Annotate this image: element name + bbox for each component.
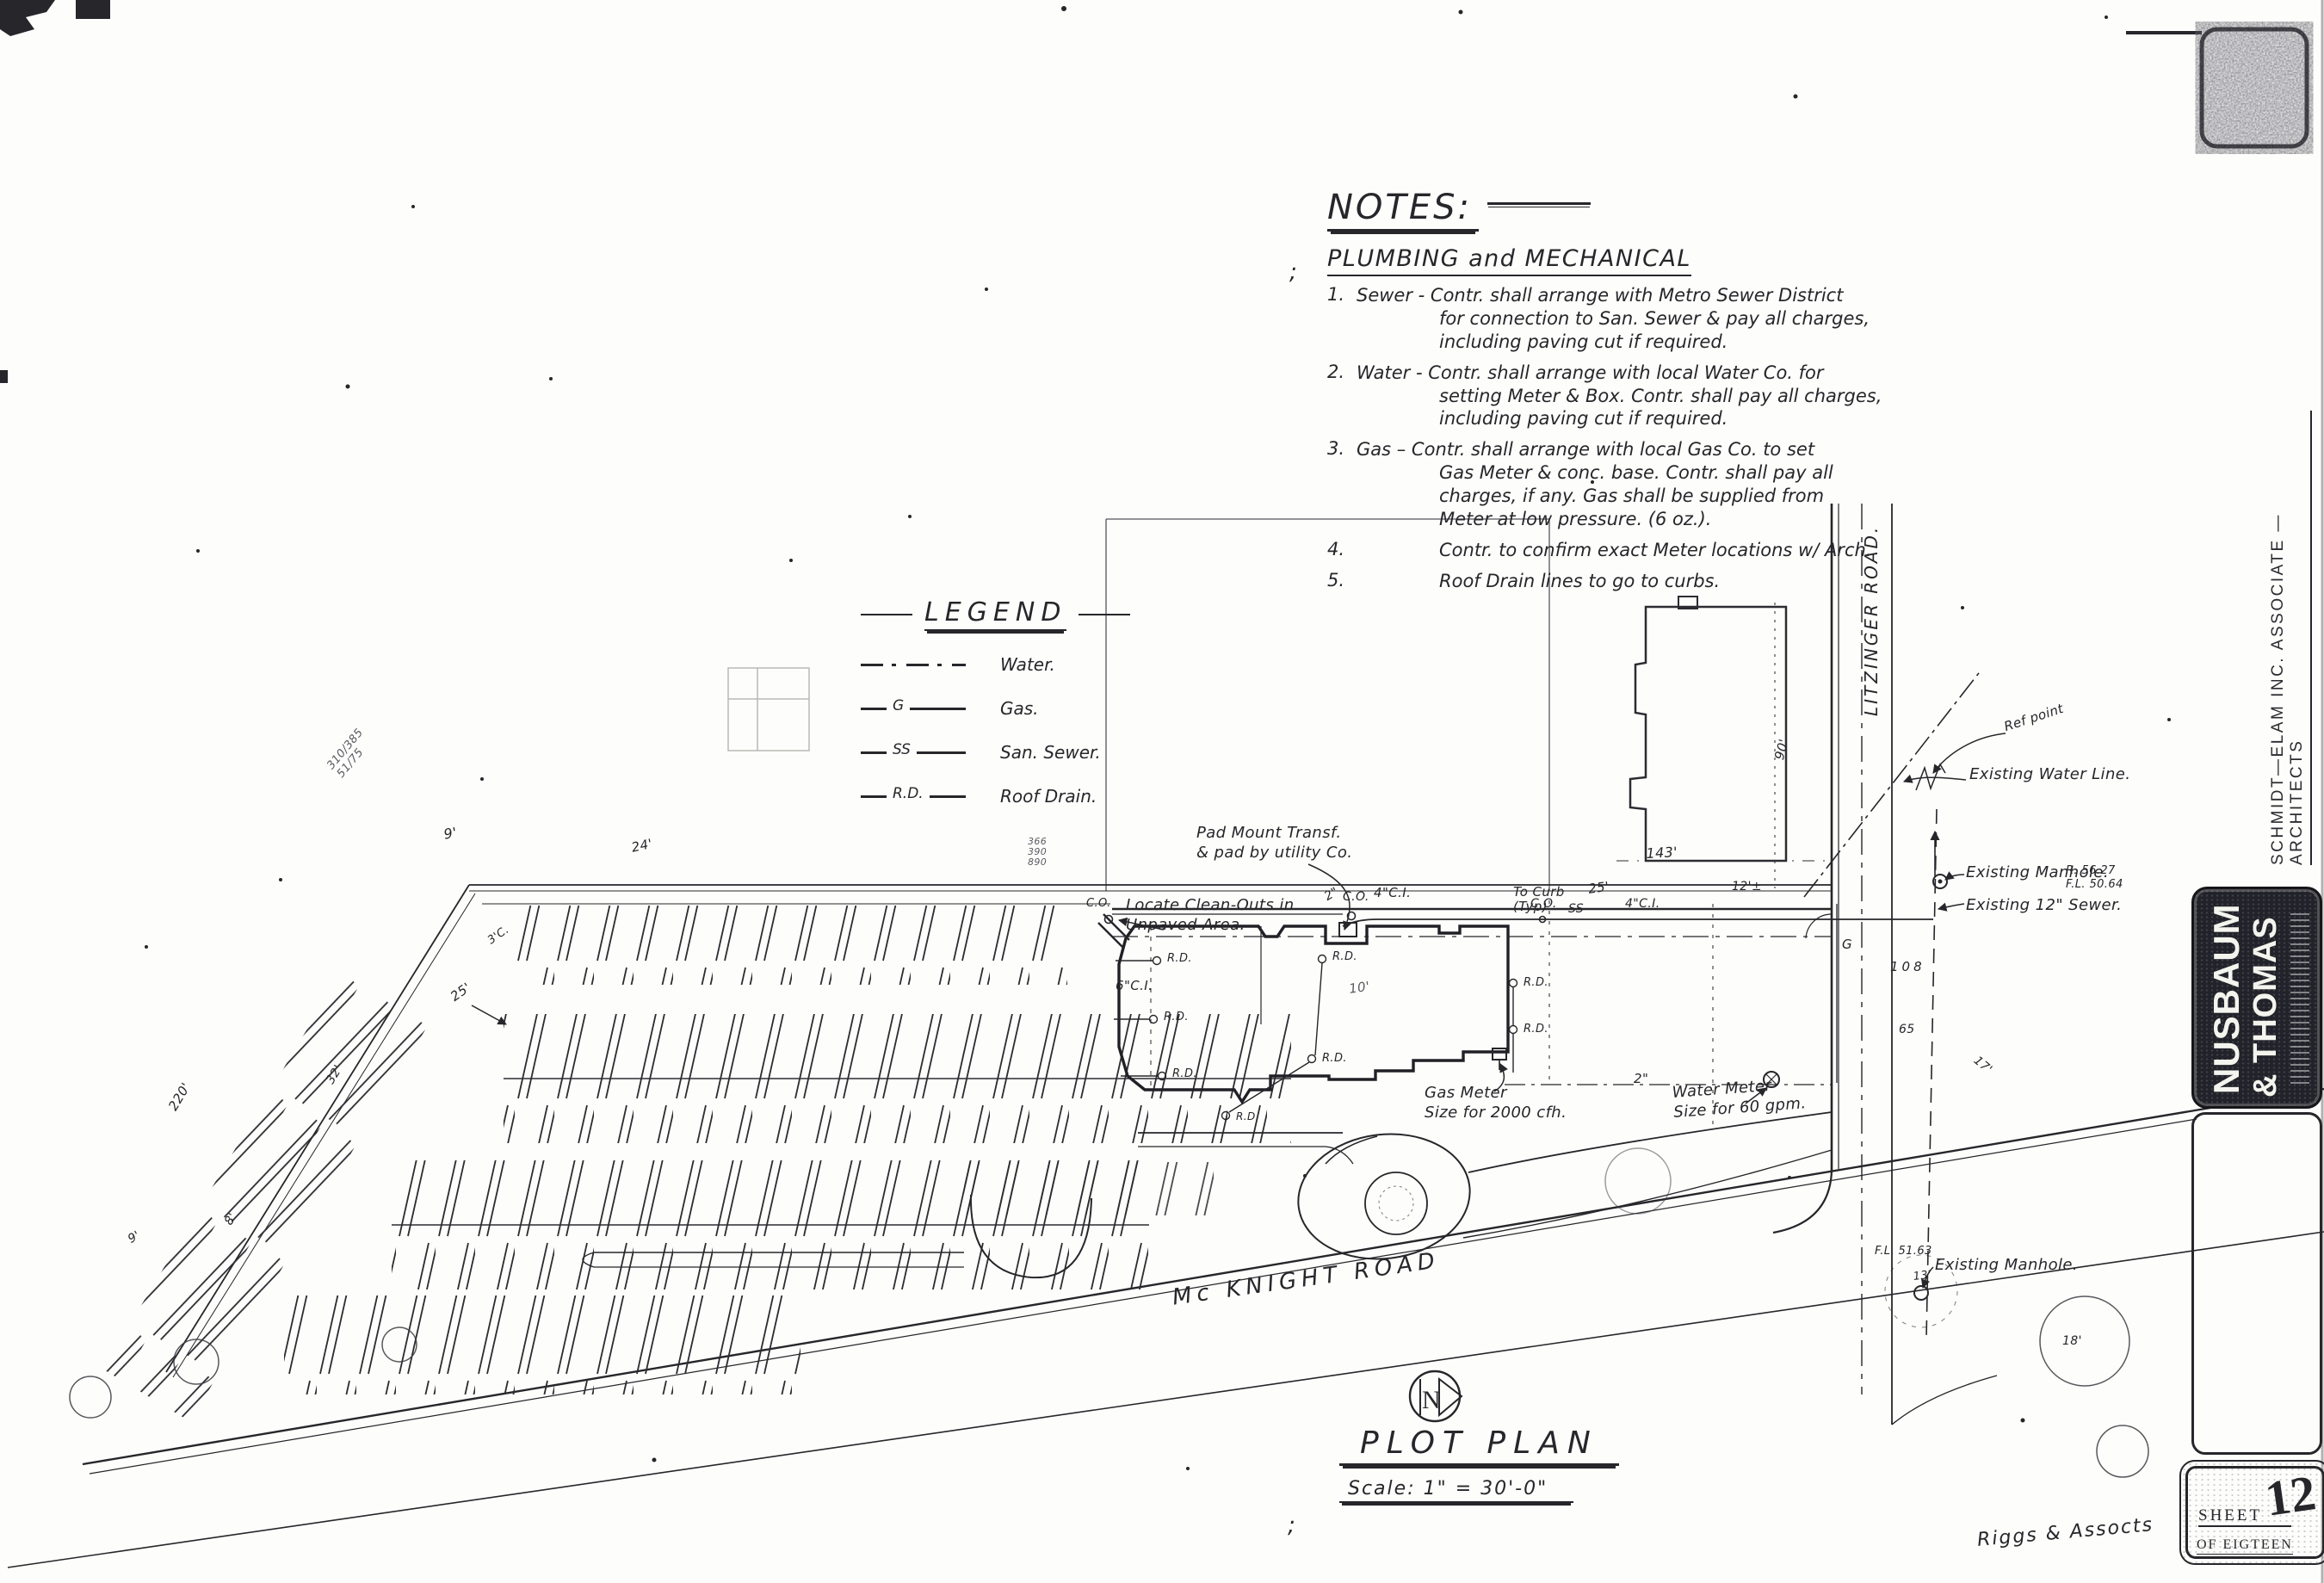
- roofdrain-line-symbol: R.D.: [861, 795, 966, 798]
- cleanout-label-west: C.O.: [1086, 897, 1111, 912]
- blueprint-sheet: N NOTES: PLUMBING and MECHANICAL 1. Sewe…: [0, 0, 2324, 1583]
- dim-12: 12'±: [1732, 880, 1762, 895]
- existing-sewer-label: Existing 12" Sewer.: [1966, 895, 2122, 915]
- manhole-elevation-bottom: F.L. 51.63: [1875, 1245, 1932, 1259]
- water-line-symbol: [861, 664, 966, 666]
- roof-drain-tag: R.D.: [1524, 976, 1548, 991]
- plot-plan-title: PLOT PLAN: [1339, 1425, 1619, 1466]
- sheet-of: OF EIGTEEN: [2197, 1537, 2293, 1555]
- north-arrow: N: [1410, 1371, 1462, 1421]
- firm-stamp: NUSBAUM & THOMAS: [2191, 887, 2322, 1109]
- parking-stalls: [103, 906, 1291, 1422]
- roof-drain-tag: R.D.: [1172, 1067, 1197, 1082]
- roof-drain-tag: R.D.: [1332, 950, 1357, 965]
- erased-sketch: [728, 668, 809, 751]
- legend-title: LEGEND: [924, 597, 1066, 631]
- rule: [861, 614, 912, 615]
- manhole-elevations-top: R. 56.27 F.L. 50.64: [2066, 864, 2123, 891]
- notes-title: NOTES:: [1327, 188, 1479, 232]
- sheet-number: 12: [2262, 1463, 2320, 1527]
- dim-10: 10': [1348, 979, 1371, 998]
- sheet-block-border: SHEET 12 OF EIGTEEN: [2185, 1466, 2324, 1559]
- rule: [1487, 202, 1591, 205]
- note-item: 1. Sewer - Contr. shall arrange with Met…: [1327, 284, 1913, 354]
- roof-drain-tag: R.D.: [1524, 1023, 1548, 1037]
- legend-row-gas: G Gas.: [861, 698, 1145, 719]
- sewer-line-symbol: SS: [861, 751, 966, 754]
- cleanout-label-mid: C.O.: [1343, 890, 1369, 906]
- elevation-stack: 366 390 890: [1028, 837, 1047, 868]
- firm-fine-print: [2290, 913, 2309, 1084]
- drawing-title-block: PLOT PLAN Scale: 1" = 30'-0": [1339, 1425, 1619, 1503]
- neighbor-building: [1630, 607, 1786, 861]
- north-letter: N: [1422, 1386, 1441, 1414]
- existing-water-label: Existing Water Line.: [1969, 764, 2130, 784]
- pad-mount-note: Pad Mount Transf. & pad by utility Co.: [1196, 823, 1352, 863]
- pipe-label-4ci-west: 4"C.I.: [1374, 885, 1411, 901]
- rule: [1079, 614, 1130, 615]
- gas-meter-note: Gas Meter Size for 2000 cfh.: [1425, 1083, 1567, 1122]
- notes-subtitle: PLUMBING and MECHANICAL: [1327, 245, 1691, 276]
- architect-seal: [2126, 29, 2307, 146]
- legend-block: LEGEND Water. G Gas. SS San. Sewer. R.D.…: [861, 597, 1145, 807]
- dim-108: 108: [1890, 959, 1925, 975]
- roof-drain-tag: R.D.: [1164, 1011, 1189, 1025]
- dim-9-top: 9': [442, 824, 459, 844]
- note-item: 2. Water - Contr. shall arrange with loc…: [1327, 362, 1913, 431]
- site-plan-drawing: N: [0, 0, 2324, 1583]
- firm-name-line1: NUSBAUM: [2206, 903, 2247, 1094]
- clean-outs-note: Locate Clean-Outs in Unpaved Area.: [1126, 895, 1295, 935]
- legend-row-water: Water.: [861, 654, 1145, 675]
- gas-line-letter: G: [1842, 937, 1852, 953]
- scale-note: Scale: 1" = 30'-0": [1339, 1478, 1573, 1503]
- stray-mark: ;: [1288, 1512, 1295, 1540]
- dim-65: 65: [1899, 1023, 1915, 1038]
- litzinger-road: [1773, 504, 1997, 1425]
- notes-block: NOTES: PLUMBING and MECHANICAL 1. Sewer …: [1327, 188, 1913, 593]
- dim-13: 13': [1913, 1269, 1932, 1285]
- existing-manhole-bottom-label: Existing Manhole.: [1935, 1255, 2078, 1275]
- road-label-litzinger: LITZINGER ROAD.: [1861, 525, 1883, 716]
- note-item: 4. Contr. to confirm exact Meter locatio…: [1327, 539, 1913, 562]
- pipe-label-6ci: 6"C.I.: [1116, 978, 1153, 994]
- note-item: 5. Roof Drain lines to go to curbs.: [1327, 570, 1913, 593]
- legend-row-roofdrain: R.D. Roof Drain.: [861, 786, 1145, 807]
- cleanout-label: C.O.: [1530, 897, 1557, 912]
- stray-mark: ;: [1289, 258, 1297, 287]
- gas-line-symbol: G: [861, 708, 966, 710]
- sanitary-label: SS: [1568, 902, 1584, 918]
- project-block: PROJECT Mc KNIGHT CHURCH of CHRIST LADUE…: [2191, 1112, 2322, 1455]
- pipe-label-4ci-east: 4"C.I.: [1625, 897, 1660, 912]
- roof-drain-tag: R.D.: [1322, 1052, 1347, 1067]
- architect-strip: SCHMIDT—ELAM INC. ASSOCIATE —ARCHITECTS: [2269, 411, 2312, 865]
- roof-drain-tag: R.D.: [1167, 952, 1192, 967]
- dim-2in-water: 2": [1634, 1071, 1648, 1087]
- dim-143: 143': [1646, 844, 1678, 863]
- dim-18: 18': [2062, 1334, 2082, 1350]
- sheet-block: SHEET 12 OF EIGTEEN: [2179, 1460, 2324, 1565]
- firm-name-line2: & THOMAS: [2247, 916, 2284, 1098]
- note-item: 3. Gas – Contr. shall arrange with local…: [1327, 438, 1913, 531]
- legend-row-sewer: SS San. Sewer.: [861, 742, 1145, 763]
- roof-drain-tag: R.D.: [1236, 1110, 1259, 1123]
- dim-25-east: 25': [1587, 879, 1610, 898]
